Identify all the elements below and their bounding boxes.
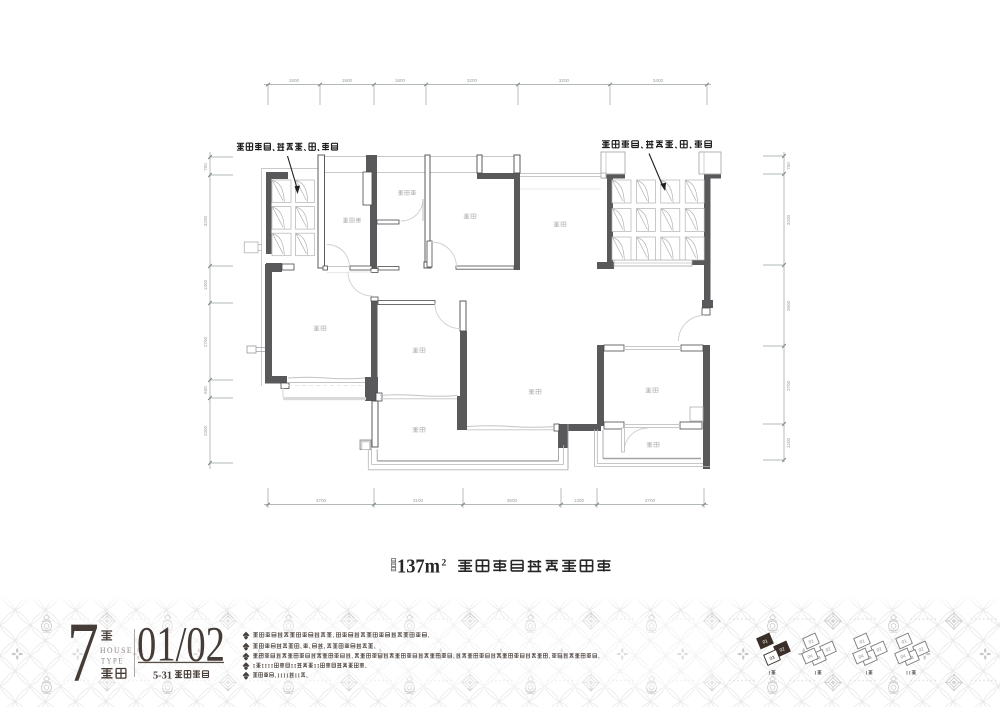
svg-text:3500: 3500 [507, 498, 518, 503]
svg-text:3200: 3200 [786, 214, 791, 225]
svg-text:2700: 2700 [203, 336, 208, 347]
svg-text:2300: 2300 [203, 425, 208, 436]
svg-text:3700: 3700 [645, 498, 656, 503]
svg-text:1800: 1800 [289, 78, 300, 83]
svg-text:700: 700 [203, 163, 208, 171]
svg-text:TYPE: TYPE [101, 657, 124, 666]
svg-text:3200: 3200 [203, 215, 208, 226]
svg-text:1300: 1300 [574, 498, 585, 503]
svg-text:3200: 3200 [559, 78, 570, 83]
svg-text:700: 700 [786, 162, 791, 170]
svg-text:3700: 3700 [316, 498, 327, 503]
svg-text:3400: 3400 [653, 78, 664, 83]
svg-text:3100: 3100 [413, 498, 424, 503]
svg-text:137m: 137m [397, 555, 440, 577]
svg-text:2: 2 [442, 559, 447, 569]
svg-text:3200: 3200 [467, 78, 478, 83]
svg-text:7: 7 [67, 606, 99, 700]
svg-text:2700: 2700 [786, 380, 791, 391]
svg-text:2600: 2600 [786, 300, 791, 311]
svg-text:600: 600 [203, 386, 208, 394]
svg-text:HOUSE: HOUSE [100, 646, 133, 655]
svg-text:5-31: 5-31 [153, 671, 172, 682]
svg-text:1300: 1300 [203, 279, 208, 290]
svg-text:1200: 1200 [786, 437, 791, 448]
svg-text:1900: 1900 [342, 78, 353, 83]
svg-text:1800: 1800 [395, 78, 406, 83]
